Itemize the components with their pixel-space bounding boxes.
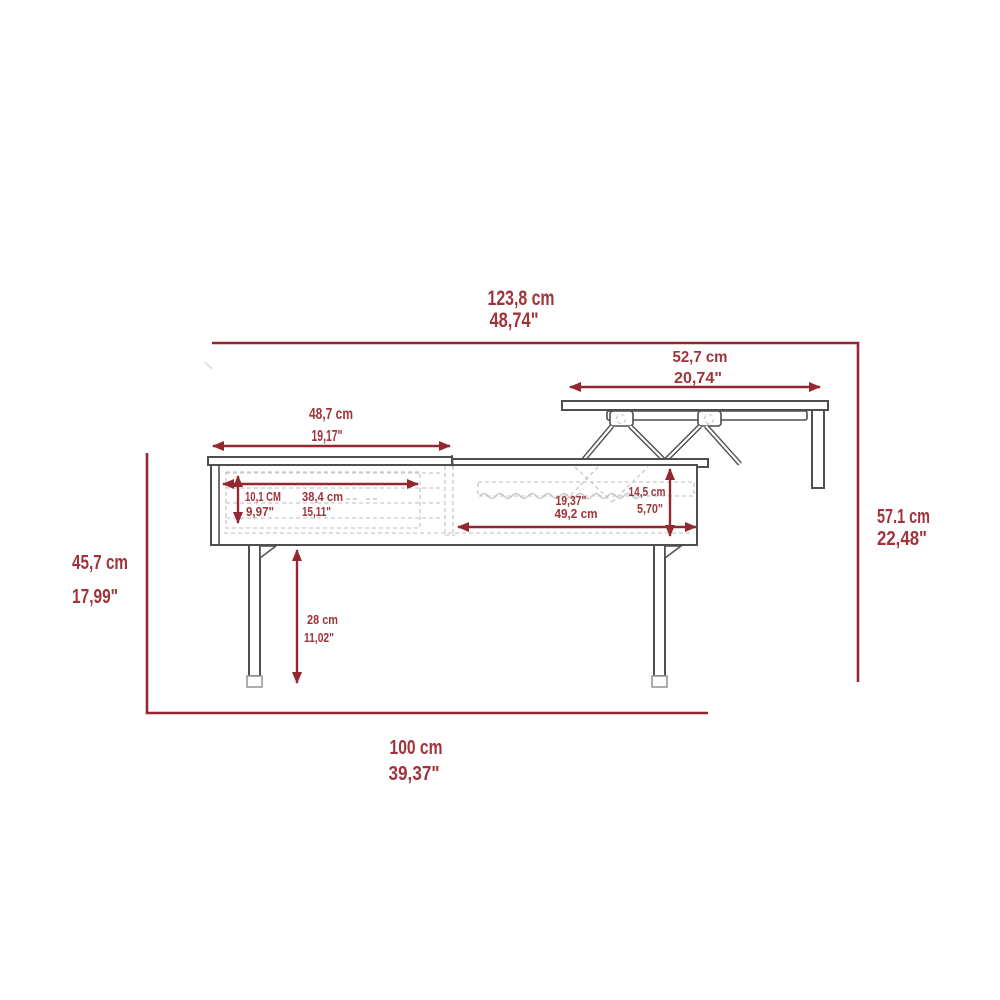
compartment-height-in-label: 5,70" [637,501,663,516]
slab-joint [452,455,453,467]
table-height-cm-label: 45,7 cm [72,552,128,574]
left-leg-gusset [260,546,276,558]
right-leg [654,545,665,676]
leg-height-in-label: 11,02" [304,630,334,645]
diagram-svg: 123,8 cm 48,74" 52,7 cm 20,74" 48,7 cm 1… [0,0,1000,1000]
table-drawing [205,362,828,687]
open-height-in-label: 22,48" [877,528,927,550]
drawer-width-cm-label: 38,4 cm [302,489,343,504]
compartment-height-cm-label: 14,5 cm [629,484,666,499]
lift-top-panel [562,401,828,410]
lift-top-width-in-label: 20,74" [674,370,722,387]
base-width-cm-label: 100 cm [390,737,443,759]
lift-support-arm [812,410,824,488]
right-leg-gusset [665,546,681,558]
base-width-in-label: 39,37" [389,763,440,785]
lift-top-width-cm-label: 52,7 cm [673,349,728,366]
compartment-width-cm-label: 49,2 cm [555,506,598,521]
top-lid-left [208,457,452,465]
left-leg-foot [247,676,262,687]
lift-bracket-left [610,411,633,426]
drawer-width-in-label: 15,11" [302,504,331,519]
left-top-width-cm-label: 48,7 cm [309,406,353,423]
stray-mark [205,362,212,369]
table-height-in-label: 17,99" [72,586,118,608]
overall-width-in-label: 48,74" [490,309,539,332]
right-leg-foot [652,676,667,687]
drawer-height-cm-label: 10,1 CM [245,489,281,504]
overall-width-cm-label: 123,8 cm [488,287,555,310]
left-leg [249,545,260,676]
leg-height-cm-label: 28 cm [307,612,338,627]
dimension-diagram: 123,8 cm 48,74" 52,7 cm 20,74" 48,7 cm 1… [0,0,1000,1000]
lift-bracket-right [698,411,721,426]
left-top-width-in-label: 19,17" [312,428,343,445]
open-height-cm-label: 57.1 cm [877,506,930,528]
drawer-height-in-label: 9,97" [246,504,274,519]
